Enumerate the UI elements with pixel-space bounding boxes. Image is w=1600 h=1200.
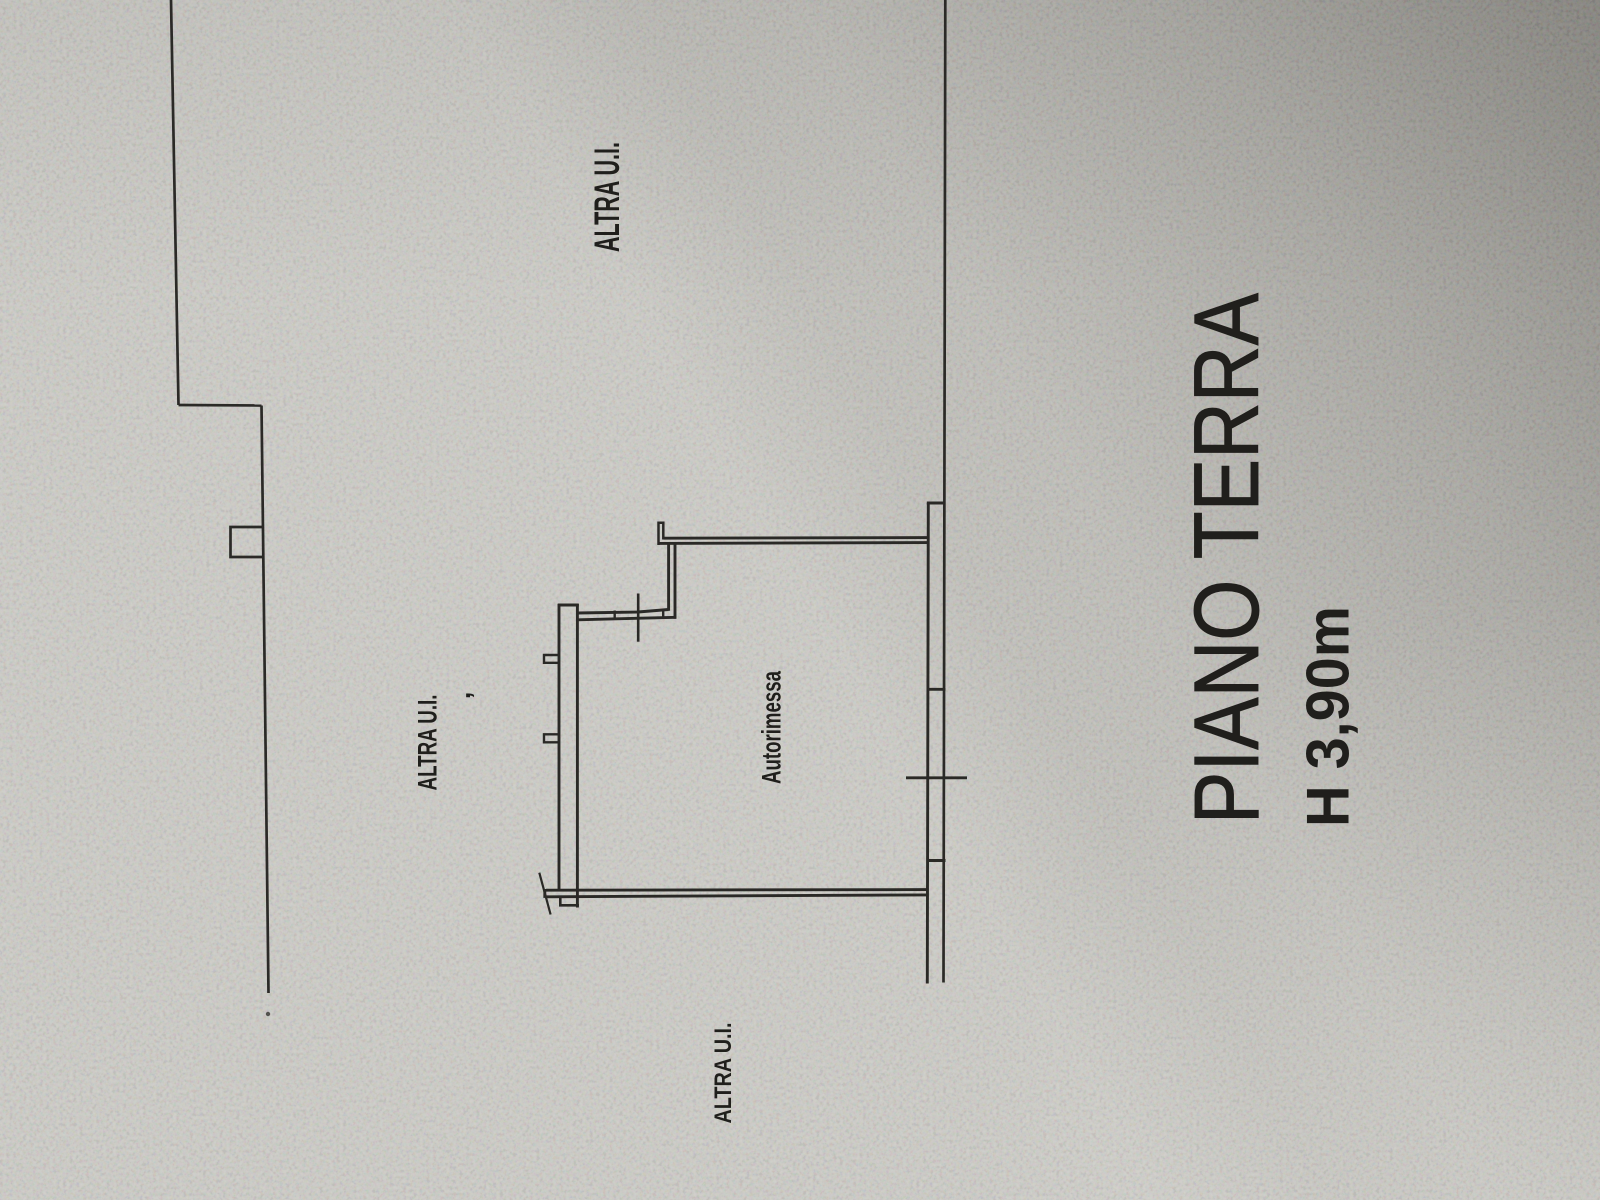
svg-text:ALTRA U.I.: ALTRA U.I. — [710, 1023, 737, 1124]
svg-text:H 3,90m: H 3,90m — [1295, 606, 1362, 827]
svg-text:ALTRA U.I.: ALTRA U.I. — [588, 142, 627, 252]
svg-text:,: , — [446, 692, 476, 699]
svg-text:ALTRA U.I.: ALTRA U.I. — [413, 695, 443, 791]
svg-text:PIANO TERRA: PIANO TERRA — [1176, 292, 1278, 824]
svg-text:Autorimessa: Autorimessa — [757, 670, 787, 784]
